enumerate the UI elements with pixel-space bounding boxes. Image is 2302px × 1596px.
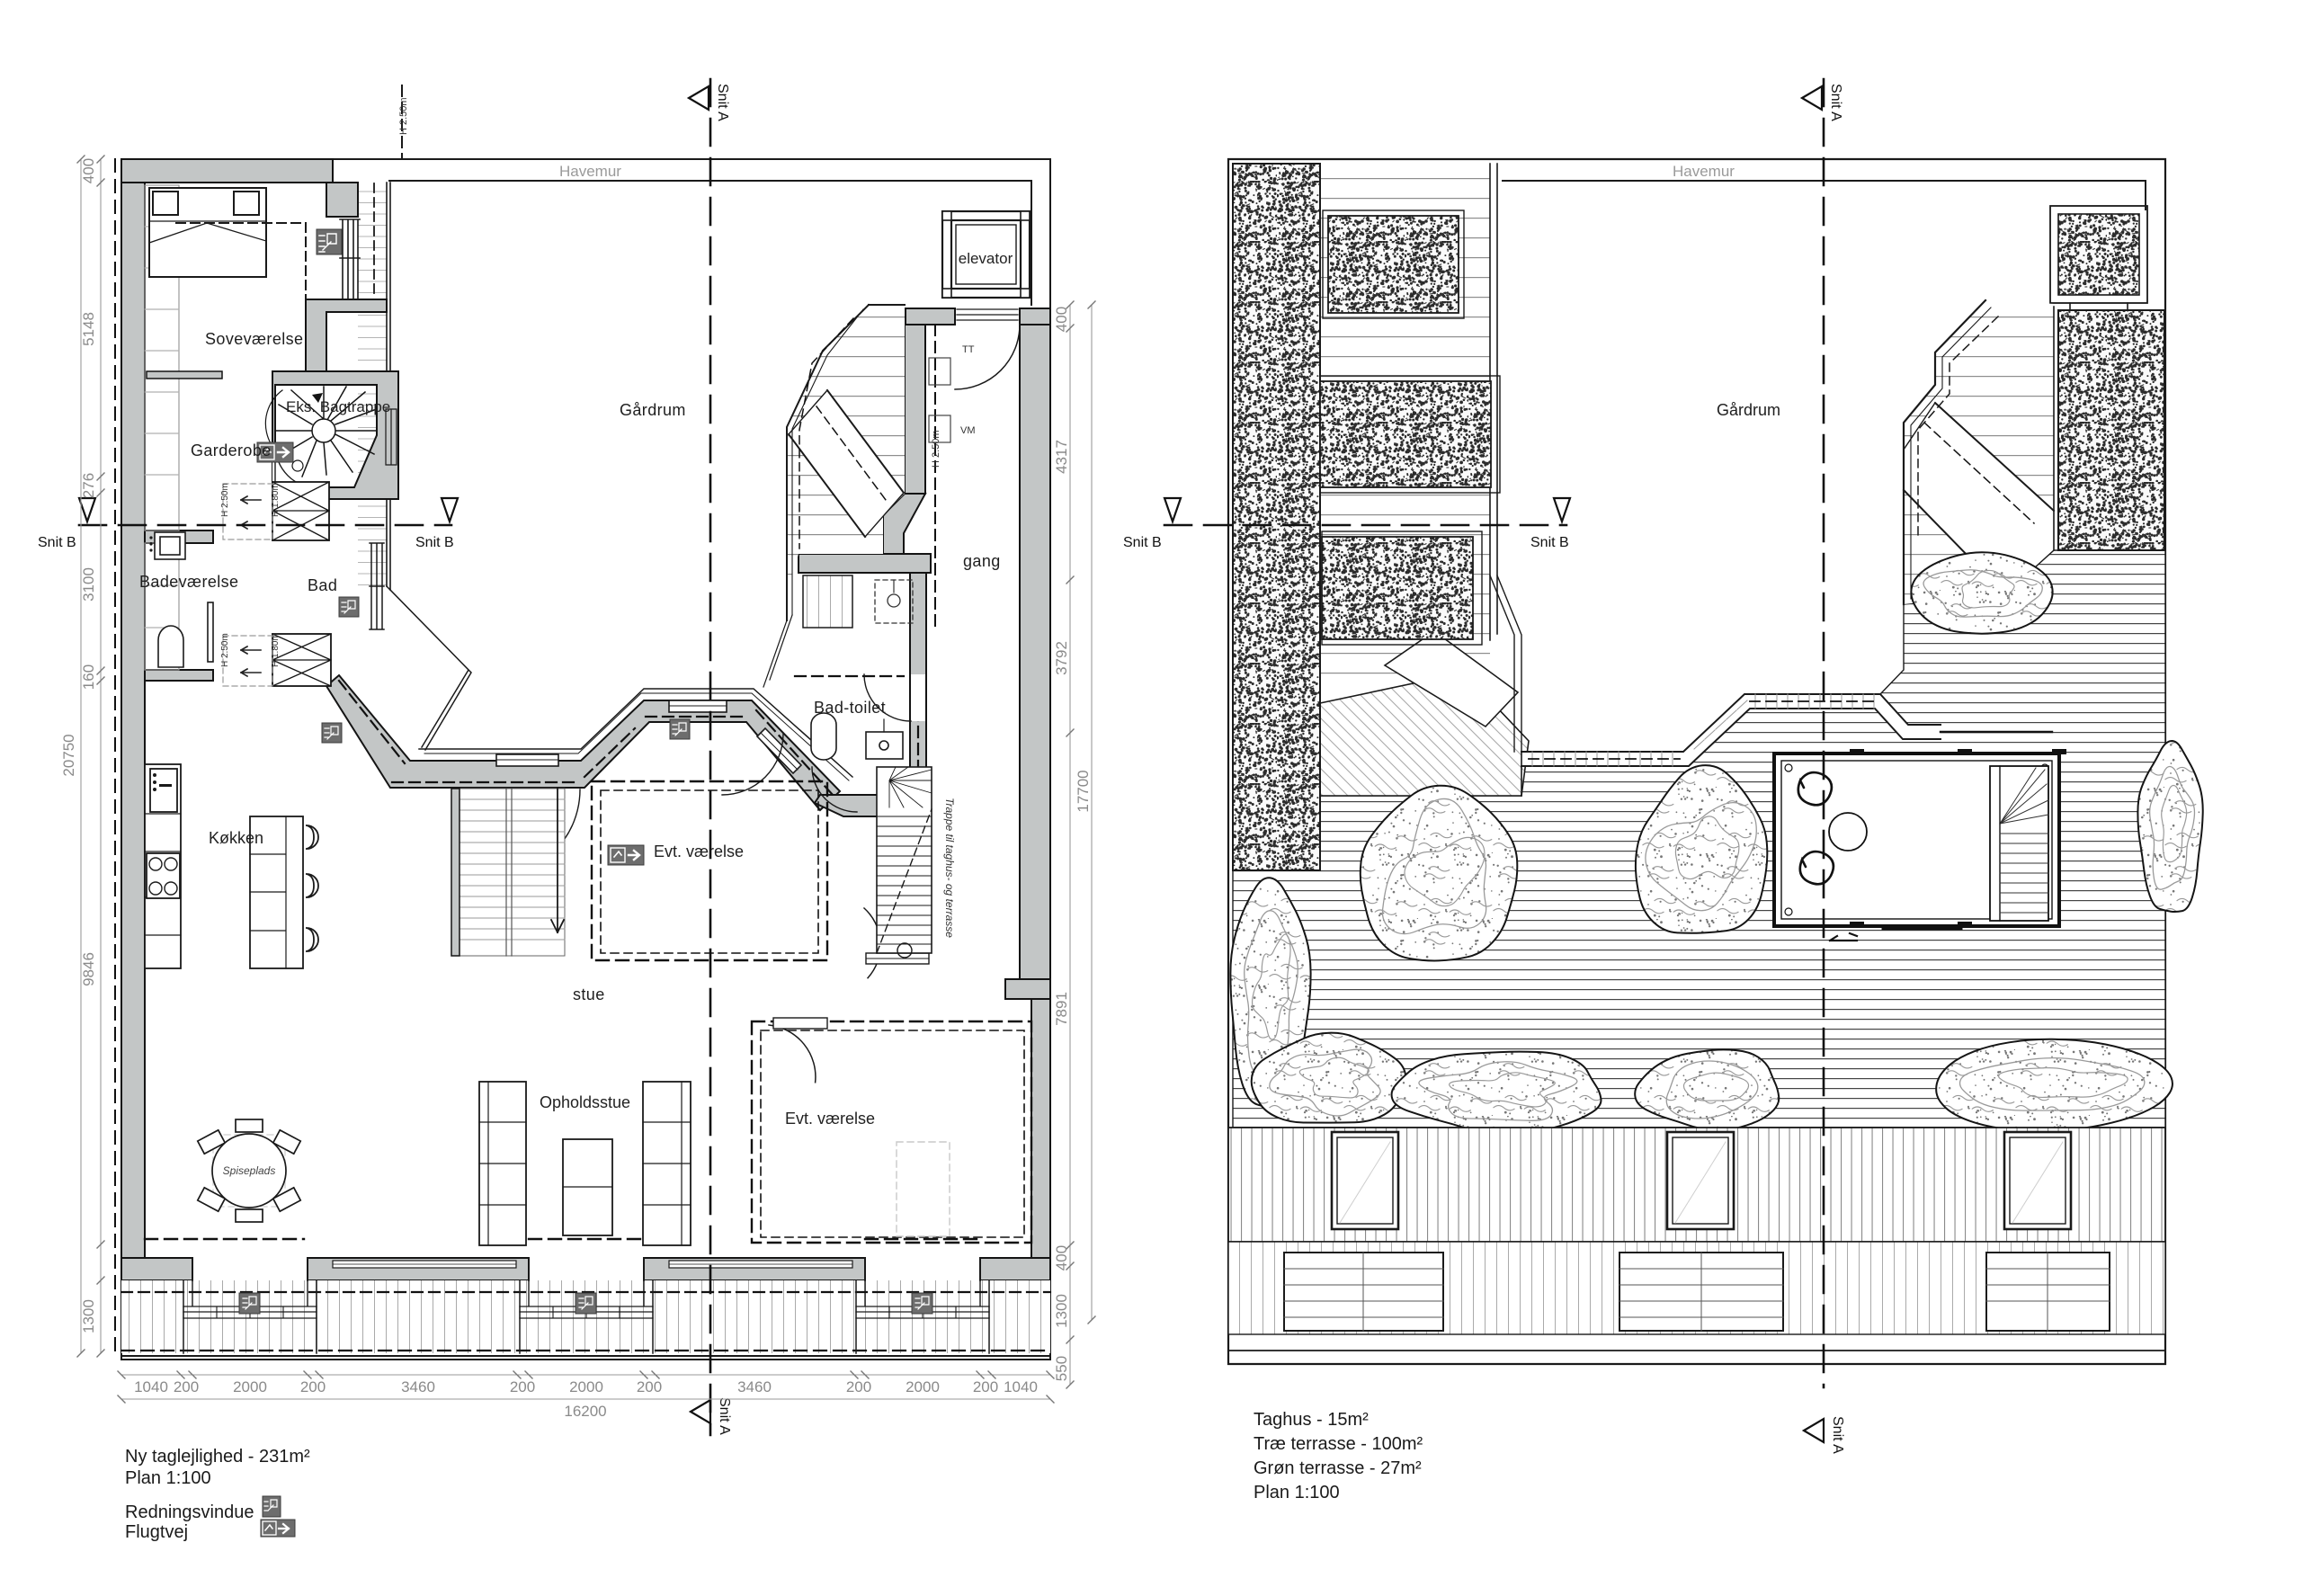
svg-text:Garderobe: Garderobe (191, 441, 272, 459)
svg-text:5148: 5148 (80, 312, 97, 346)
svg-text:Snit A: Snit A (715, 84, 730, 121)
svg-text:Bad-toilet: Bad-toilet (814, 699, 886, 717)
svg-text:1300: 1300 (1053, 1294, 1070, 1328)
svg-text:400: 400 (1053, 307, 1070, 332)
svg-text:17700: 17700 (1075, 770, 1092, 812)
svg-text:200: 200 (973, 1378, 998, 1395)
svg-text:H 2.50m: H 2.50m (398, 97, 409, 135)
svg-text:Taghus - 15m²: Taghus - 15m² (1254, 1410, 1369, 1430)
svg-text:Soveværelse: Soveværelse (205, 330, 303, 348)
svg-text:2000: 2000 (906, 1378, 940, 1395)
svg-text:Grøn terrasse - 27m²: Grøn terrasse - 27m² (1254, 1458, 1422, 1478)
svg-text:1040: 1040 (134, 1378, 168, 1395)
svg-text:200: 200 (510, 1378, 535, 1395)
svg-text:2000: 2000 (233, 1378, 267, 1395)
svg-text:276: 276 (80, 473, 97, 498)
svg-text:1040: 1040 (1004, 1378, 1038, 1395)
svg-text:7891: 7891 (1053, 992, 1070, 1026)
svg-text:Plan 1:100: Plan 1:100 (125, 1468, 211, 1488)
svg-text:Havemur: Havemur (1673, 163, 1735, 180)
svg-text:3460: 3460 (737, 1378, 772, 1395)
svg-text:Snit B: Snit B (1530, 535, 1569, 550)
svg-text:20750: 20750 (60, 734, 77, 776)
svg-text:200: 200 (846, 1378, 871, 1395)
svg-text:160: 160 (80, 664, 97, 690)
svg-text:Ny taglejlighed - 231m²: Ny taglejlighed - 231m² (125, 1447, 310, 1467)
svg-text:1300: 1300 (80, 1299, 97, 1333)
svg-text:VM: VM (960, 425, 976, 436)
svg-text:200: 200 (300, 1378, 326, 1395)
svg-text:H 2.50m: H 2.50m (931, 430, 941, 468)
svg-text:Evt. værelse: Evt. værelse (654, 843, 744, 860)
svg-text:3100: 3100 (80, 567, 97, 602)
svg-text:2000: 2000 (569, 1378, 603, 1395)
svg-text:400: 400 (1053, 1245, 1070, 1271)
svg-text:Opholdsstue: Opholdsstue (540, 1093, 630, 1111)
svg-text:Bad: Bad (308, 576, 337, 594)
svg-text:Redningsvindue: Redningsvindue (125, 1502, 254, 1522)
svg-text:H 1.80m: H 1.80m (271, 633, 281, 667)
svg-text:3460: 3460 (401, 1378, 435, 1395)
svg-text:Køkken: Køkken (209, 829, 263, 847)
svg-text:Træ terrasse - 100m²: Træ terrasse - 100m² (1254, 1434, 1423, 1454)
svg-text:elevator: elevator (959, 250, 1013, 267)
svg-text:Badeværelse: Badeværelse (139, 573, 238, 591)
svg-text:Gårdrum: Gårdrum (620, 401, 686, 419)
svg-text:TT: TT (962, 344, 975, 355)
svg-text:4317: 4317 (1053, 440, 1070, 474)
svg-text:Eks. Bagtrappe: Eks. Bagtrappe (286, 398, 390, 415)
svg-text:Plan 1:100: Plan 1:100 (1254, 1483, 1340, 1502)
svg-text:Gårdrum: Gårdrum (1717, 401, 1780, 419)
svg-text:H 2.50m: H 2.50m (220, 633, 230, 667)
svg-text:Snit B: Snit B (415, 535, 454, 550)
svg-text:Evt. værelse: Evt. værelse (785, 1110, 875, 1128)
svg-text:200: 200 (637, 1378, 662, 1395)
svg-text:Snit A: Snit A (717, 1397, 732, 1435)
svg-text:Snit B: Snit B (1123, 535, 1162, 550)
svg-text:200: 200 (174, 1378, 199, 1395)
svg-text:gang: gang (963, 552, 1001, 570)
svg-text:Trappe til taghus- og terrasse: Trappe til taghus- og terrasse (943, 798, 956, 938)
svg-text:H 1.80m: H 1.80m (271, 483, 281, 517)
svg-text:Snit A: Snit A (1828, 84, 1843, 121)
svg-text:Havemur: Havemur (559, 163, 621, 180)
svg-text:16200: 16200 (564, 1403, 606, 1420)
svg-text:3792: 3792 (1053, 641, 1070, 675)
svg-text:Snit B: Snit B (38, 535, 76, 550)
svg-text:H 2.50m: H 2.50m (220, 483, 230, 517)
svg-text:Spiseplads: Spiseplads (223, 1164, 276, 1177)
svg-text:stue: stue (573, 985, 605, 1003)
svg-text:Flugtvej: Flugtvej (125, 1522, 188, 1542)
svg-text:9846: 9846 (80, 952, 97, 986)
svg-text:550: 550 (1053, 1356, 1070, 1381)
svg-text:400: 400 (80, 158, 97, 183)
svg-text:Snit A: Snit A (1830, 1416, 1845, 1454)
